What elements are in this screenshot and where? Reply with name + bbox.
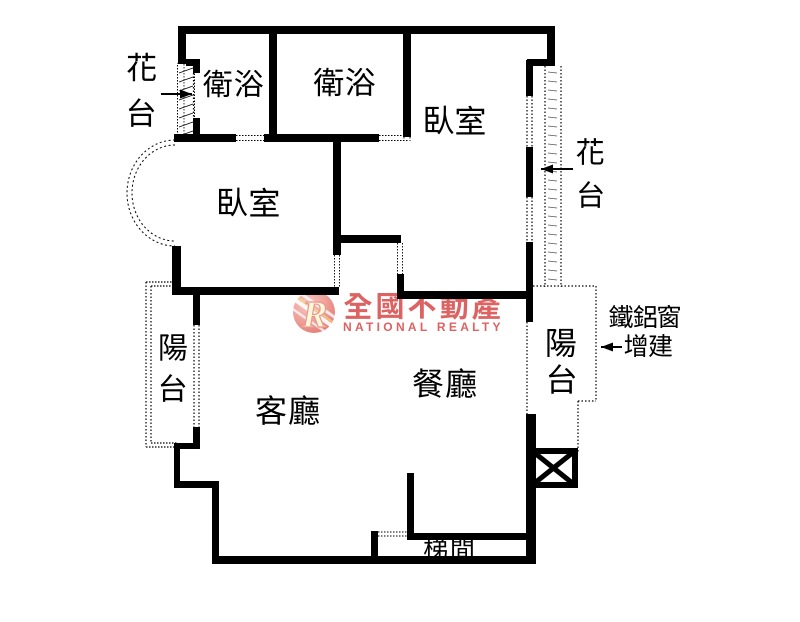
svg-text:R: R	[301, 294, 327, 336]
svg-text:NATIONAL REALTY: NATIONAL REALTY	[343, 320, 504, 334]
